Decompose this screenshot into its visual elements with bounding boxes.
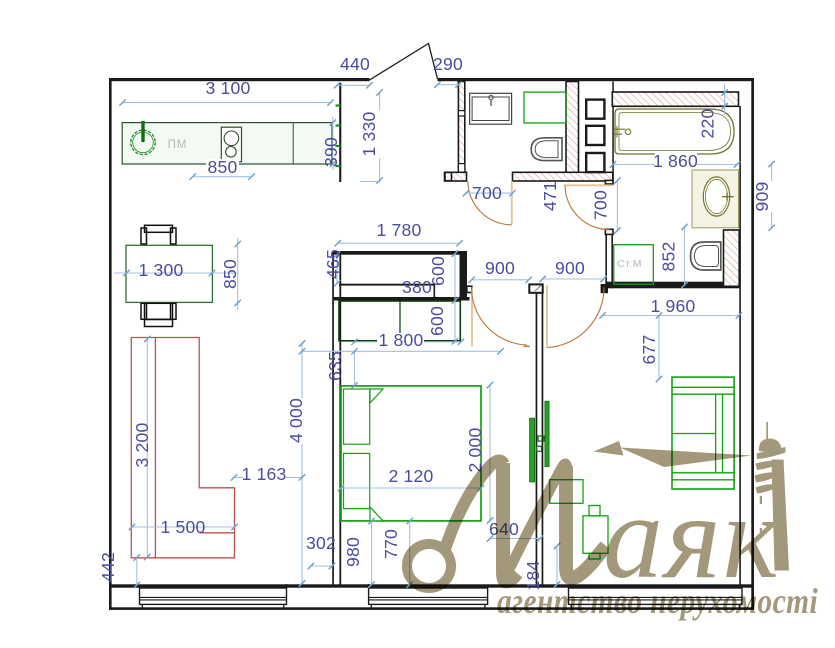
svg-text:850: 850: [208, 157, 238, 177]
svg-text:900: 900: [555, 258, 585, 278]
svg-text:агентство нерухомості: агентство нерухомості: [497, 582, 818, 621]
svg-text:3 200: 3 200: [132, 422, 152, 467]
svg-text:980: 980: [343, 537, 363, 567]
svg-text:850: 850: [220, 259, 240, 289]
svg-text:1 860: 1 860: [653, 151, 698, 171]
svg-text:700: 700: [591, 190, 611, 220]
svg-text:380: 380: [402, 277, 432, 297]
svg-text:Ст.М: Ст.М: [617, 258, 642, 270]
svg-text:635: 635: [325, 351, 345, 381]
svg-text:770: 770: [381, 529, 401, 559]
svg-text:1 330: 1 330: [359, 111, 379, 156]
svg-text:1 300: 1 300: [138, 260, 183, 280]
svg-text:220: 220: [698, 109, 718, 139]
svg-text:290: 290: [433, 54, 463, 74]
svg-text:2 120: 2 120: [388, 466, 433, 486]
svg-text:471: 471: [540, 181, 560, 211]
svg-text:677: 677: [639, 335, 659, 365]
svg-text:1 163: 1 163: [241, 464, 286, 484]
svg-text:2 000: 2 000: [465, 427, 485, 472]
svg-text:852: 852: [659, 242, 679, 272]
svg-text:1 800: 1 800: [378, 330, 423, 350]
svg-text:440: 440: [340, 54, 370, 74]
svg-text:302: 302: [306, 533, 336, 553]
svg-text:442: 442: [98, 552, 118, 582]
svg-text:900: 900: [485, 258, 515, 278]
svg-text:3 100: 3 100: [205, 78, 250, 98]
svg-text:4 000: 4 000: [286, 398, 306, 443]
svg-text:1 960: 1 960: [650, 296, 695, 316]
svg-text:600: 600: [427, 306, 447, 336]
svg-text:909: 909: [752, 182, 772, 212]
svg-text:465: 465: [323, 249, 343, 279]
svg-text:1 500: 1 500: [160, 517, 205, 537]
svg-text:390: 390: [321, 137, 341, 167]
svg-text:1 780: 1 780: [376, 220, 421, 240]
svg-text:700: 700: [472, 183, 502, 203]
svg-text:ПМ: ПМ: [168, 139, 188, 151]
